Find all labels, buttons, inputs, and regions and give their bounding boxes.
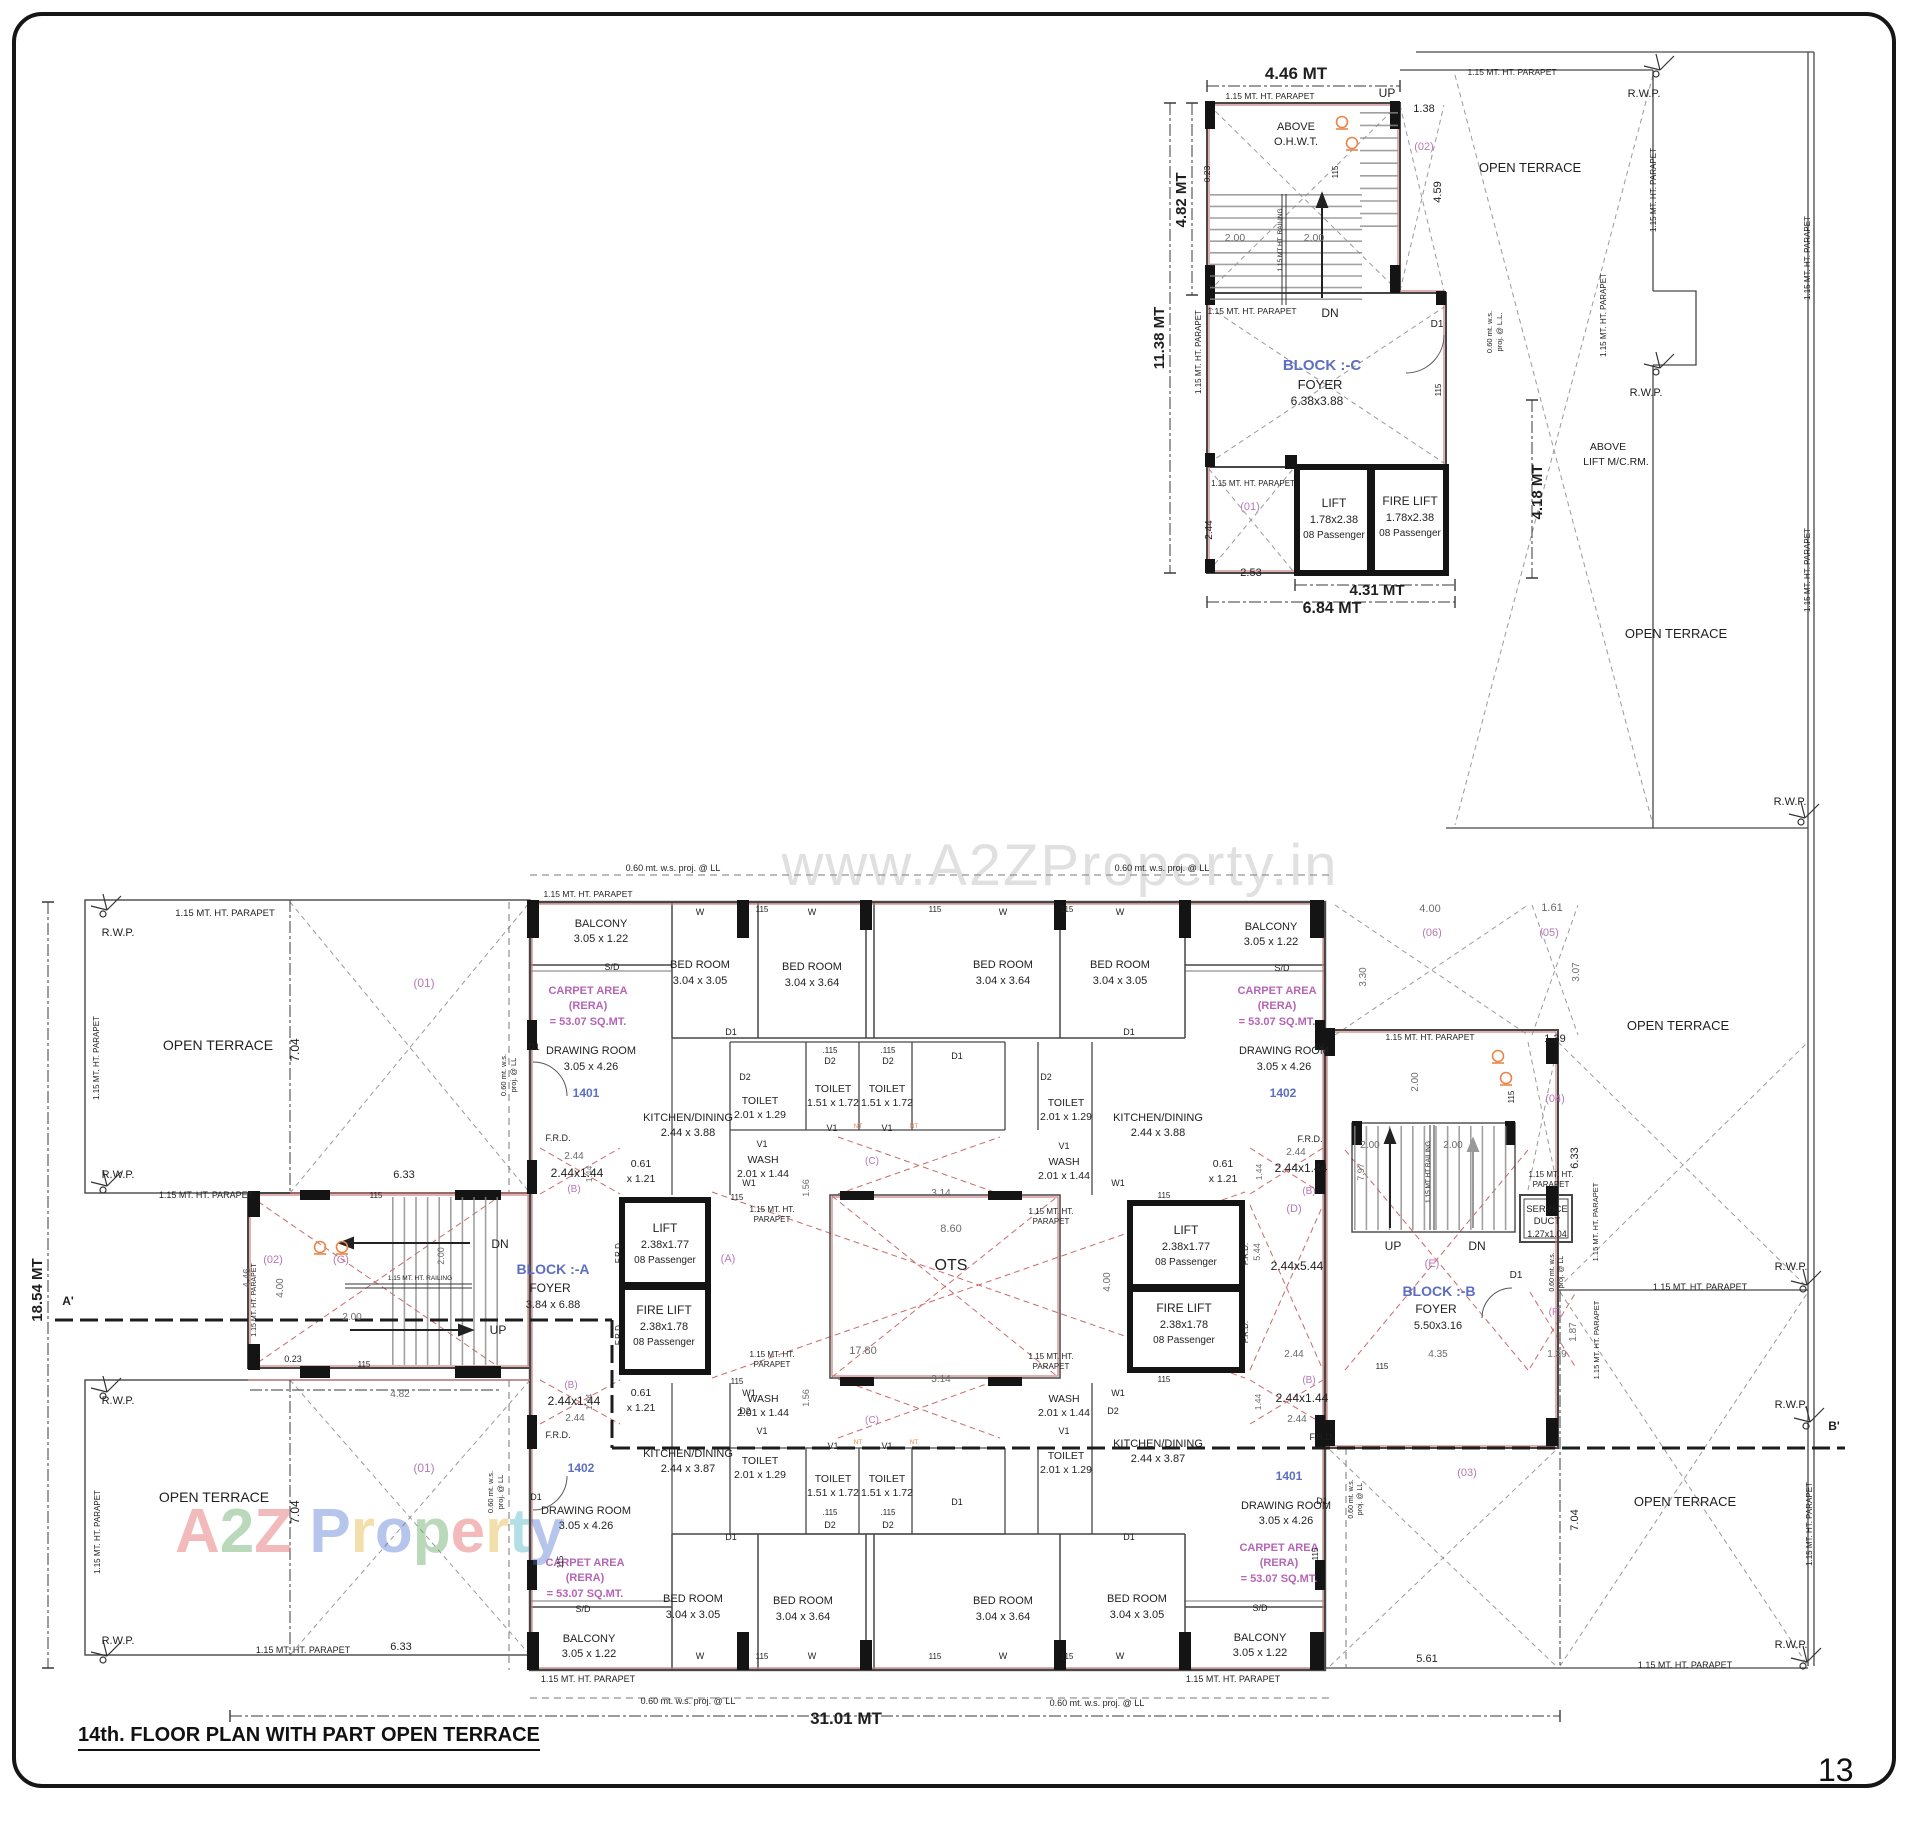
- window-w: W: [999, 1651, 1008, 1661]
- unit-number: 1402: [568, 1461, 595, 1475]
- vent-v1: V1: [881, 1441, 892, 1451]
- toilet-name: TOILET: [742, 1455, 779, 1467]
- bedroom-size: 3.04 x 3.64: [785, 977, 839, 989]
- dim-115: .115: [823, 1508, 839, 1517]
- dim: 2.00: [342, 1312, 362, 1323]
- zone-a: (A): [721, 1253, 736, 1265]
- dim: 4.00: [1419, 903, 1440, 915]
- toilet-name: TOILET: [815, 1083, 852, 1095]
- dim-115: 115: [731, 1193, 744, 1202]
- firelift-b-name: FIRE LIFT: [1156, 1301, 1212, 1315]
- proj-label: proj. @ LL: [509, 1058, 518, 1093]
- bedroom-size: 3.04 x 3.05: [1093, 975, 1147, 987]
- parapet-label: 1.15 MT. HT. PARAPET: [159, 1190, 254, 1200]
- door-d1: D1: [951, 1051, 963, 1061]
- block-c-title: BLOCK :-C: [1283, 357, 1361, 374]
- door-d2: D2: [1040, 1072, 1052, 1082]
- frd-label: F.R.D.: [1241, 1243, 1250, 1265]
- unit-number: 1402: [1270, 1086, 1297, 1100]
- dim: 4.00: [275, 1278, 286, 1298]
- bedroom-name: BED ROOM: [973, 959, 1033, 971]
- service-duct: DUCT: [1534, 1216, 1561, 1227]
- zone-01: (01): [413, 1461, 434, 1475]
- balcony-size: 3.05 x 1.22: [1233, 1647, 1287, 1659]
- dim-115: 115: [1158, 1375, 1171, 1384]
- drawing-title: 14th. FLOOR PLAN WITH PART OPEN TERRACE: [78, 1724, 540, 1751]
- door-d1: D1: [1123, 1532, 1135, 1542]
- parapet-2l: 1.15 MT. HT.: [1029, 1352, 1074, 1361]
- drawing-room-size: 3.05 x 4.26: [559, 1520, 613, 1532]
- dim: 2.00: [436, 1247, 446, 1265]
- dim: 2.44: [564, 1151, 584, 1162]
- wash-size: 2.01 x 1.44: [1038, 1407, 1090, 1419]
- toilet-name: TOILET: [869, 1083, 906, 1095]
- dim: 1.44: [584, 1393, 594, 1410]
- stair-up-label: UP: [1385, 1239, 1402, 1253]
- lift-c-name: LIFT: [1322, 496, 1347, 510]
- firelift-c-cap: 08 Passenger: [1379, 528, 1441, 539]
- stairs: [340, 112, 1513, 1335]
- bedroom-name: BED ROOM: [773, 1595, 833, 1607]
- dim-4-82-mt: 4.82 MT: [1173, 172, 1190, 227]
- parapet-label: 1.15 MT. HT. PARAPET: [251, 1263, 258, 1337]
- dim: 4.82: [390, 1389, 410, 1400]
- dim: 1.39: [1544, 1033, 1565, 1045]
- sd-label: S/D: [604, 962, 620, 972]
- proj-label: 0.60 mt. w.s.: [486, 1471, 495, 1513]
- window-w: W: [808, 907, 817, 917]
- proj-label: 0.60 mt. w.s. proj. @ LL: [626, 863, 721, 873]
- watermark-center: www.A2ZProperty.in: [780, 833, 1338, 898]
- rwp-label: R.W.P.: [1628, 88, 1661, 100]
- proj-label: proj. @ LL: [1357, 1483, 1364, 1516]
- drawing-room-size: 3.05 x 4.26: [1257, 1061, 1311, 1073]
- dim: x 1.21: [627, 1402, 656, 1414]
- dim: x 1.21: [627, 1173, 656, 1185]
- dim: 2.00: [1360, 1140, 1380, 1151]
- parapet-label: 1.15 MT. HT. PARAPET: [1194, 310, 1203, 394]
- zone-d: (D): [1286, 1203, 1301, 1215]
- railing-label: 1.15 MT HT RAILING: [1425, 1141, 1432, 1203]
- firelift-a-cap: 08 Passenger: [633, 1337, 695, 1348]
- balcony-name: BALCONY: [563, 1633, 616, 1645]
- parapet-label: 1.15 MT. HT. PARAPET: [1653, 1282, 1748, 1292]
- carpet-area: = 53.07 SQ.MT.: [550, 1016, 627, 1028]
- block-a-title: BLOCK :-A: [516, 1261, 589, 1277]
- dim: x 1.21: [1209, 1173, 1238, 1185]
- dim-6-84-mt: 6.84 MT: [1303, 600, 1362, 617]
- stair-arrow-secondary: [1468, 1139, 1478, 1228]
- door-d1: D1: [725, 1027, 737, 1037]
- parapet-label: 1.15 MT. HT. PARAPET: [1207, 306, 1296, 316]
- wash-name: WASH: [747, 1393, 778, 1405]
- bedroom-name: BED ROOM: [670, 959, 730, 971]
- parapet-label: 1.15 MT. HT. PARAPET: [1592, 1300, 1601, 1379]
- dim: 2.44x1.44: [1275, 1161, 1328, 1175]
- dim-115: 115: [929, 905, 942, 914]
- above-ohwt: ABOVE: [1277, 121, 1315, 133]
- toilet-name: TOILET: [815, 1473, 852, 1485]
- frd-label: F.R.D.: [614, 1241, 623, 1263]
- bedroom-size: 3.04 x 3.64: [976, 975, 1030, 987]
- dim-115: .115: [881, 1046, 897, 1055]
- open-terrace-label: OPEN TERRACE: [159, 1489, 269, 1505]
- wash-size: 2.01 x 1.44: [1038, 1170, 1090, 1182]
- stair-dn-label: DN: [1321, 306, 1338, 320]
- zone-c: (C): [865, 1156, 879, 1167]
- above-ohwt: O.H.W.T.: [1274, 136, 1318, 148]
- bedroom-name: BED ROOM: [663, 1593, 723, 1605]
- dim: 1.56: [801, 1389, 811, 1407]
- dim-115: 115: [1434, 383, 1443, 396]
- parapet-2l: 1.15 MT. HT.: [750, 1350, 795, 1359]
- carpet-area: CARPET AREA: [1239, 1542, 1318, 1554]
- dim: 2.44x1.44: [1276, 1391, 1329, 1405]
- dim: 0.61: [631, 1158, 652, 1170]
- dim-4-59: 4.59: [1432, 181, 1444, 202]
- nt-label: NT: [854, 1439, 863, 1446]
- zone-01: (01): [413, 976, 434, 990]
- carpet-area: CARPET AREA: [1237, 985, 1316, 997]
- toilet-size: 1.51 x 1.72: [807, 1487, 859, 1499]
- carpet-area: (RERA): [1258, 1000, 1297, 1012]
- parapet-label: 1.15 MT. HT. PARAPET: [543, 889, 632, 899]
- lift-b-name: LIFT: [1174, 1223, 1199, 1237]
- block-b-foyer-dim: 5.50x3.16: [1414, 1320, 1462, 1332]
- win-w1: W1: [742, 1178, 756, 1188]
- open-terrace-label: OPEN TERRACE: [1625, 626, 1728, 641]
- rwp-label: R.W.P.: [102, 1635, 135, 1647]
- carpet-area: (RERA): [569, 1000, 608, 1012]
- nt-label: NT: [910, 1123, 919, 1130]
- vent-v1: V1: [756, 1426, 767, 1436]
- dim-115: 115: [756, 1652, 769, 1661]
- dim-4-46-mt: 4.46 MT: [1265, 64, 1328, 83]
- door-d1: D1: [1123, 1027, 1135, 1037]
- toilet-size: 2.01 x 1.29: [1040, 1111, 1092, 1123]
- dim-11-38-mt: 11.38 MT: [1151, 307, 1168, 370]
- parapet-label: 1.15 MT. HT. PARAPET: [1467, 67, 1556, 77]
- section-a-label: A': [62, 1294, 74, 1308]
- sd-label: S/D: [1252, 1603, 1268, 1613]
- door-d1: D1: [1314, 1042, 1326, 1052]
- parapet-2l: 1.15 MT. HT.: [1529, 1170, 1574, 1179]
- parapet-label: 1.15 MT. HT. PARAPET: [1638, 1660, 1733, 1670]
- dim-115: 115: [731, 1377, 744, 1386]
- dim-1-38: 1.38: [1413, 103, 1434, 115]
- kitchen-dining: KITCHEN/DINING: [1113, 1438, 1203, 1450]
- dim-115: 115: [1507, 1090, 1516, 1103]
- window-w: W: [999, 907, 1008, 917]
- toilet-name: TOILET: [1048, 1450, 1085, 1462]
- dim-115: 115: [1158, 1191, 1171, 1200]
- stair-up-label: UP: [1379, 86, 1396, 100]
- toilet-size: 1.51 x 1.72: [861, 1487, 913, 1499]
- balcony-size: 3.05 x 1.22: [574, 933, 628, 945]
- zone-e: (E): [1425, 1258, 1440, 1270]
- firelift-c-size: 1.78x2.38: [1386, 512, 1434, 524]
- dim: 7.04: [1569, 1509, 1581, 1530]
- zone-03: (03): [1457, 1467, 1477, 1479]
- vent-v1: V1: [756, 1139, 767, 1149]
- bedroom-size: 3.04 x 3.05: [666, 1609, 720, 1621]
- rwp-label: R.W.P.: [1630, 387, 1663, 399]
- zone-b: (B): [564, 1380, 577, 1391]
- door-d1: D1: [1316, 1496, 1328, 1506]
- stair-up-label: UP: [490, 1323, 507, 1337]
- door-d1: D1: [951, 1497, 963, 1507]
- lift-a-cap: 08 Passenger: [634, 1255, 696, 1266]
- zone-05: (05): [1539, 927, 1559, 939]
- frd-label: F.R.D.: [545, 1430, 570, 1440]
- dim-115: 115: [1331, 165, 1340, 178]
- watermark-left: A2Z Property: [175, 1497, 565, 1566]
- lift-b-size: 2.38x1.77: [1162, 1241, 1210, 1253]
- dim-0-23: 0.23: [1202, 165, 1212, 182]
- drawing-room-size: 3.05 x 4.26: [564, 1061, 618, 1073]
- dim: 2.44: [1284, 1349, 1304, 1360]
- above-lift-mc: LIFT M/C.RM.: [1583, 456, 1649, 468]
- window-w: W: [696, 1651, 705, 1661]
- vent-v1: V1: [826, 1123, 837, 1133]
- rwp-label: R.W.P.: [1774, 796, 1807, 808]
- toilet-size: 2.01 x 1.29: [734, 1469, 786, 1481]
- dim: 2.44: [1286, 1147, 1306, 1158]
- door-d1: D1: [528, 1042, 540, 1052]
- floor-plan-drawing: www.A2ZProperty.inA2Z Property 4.46 MT1.…: [0, 0, 1920, 1827]
- dim: 3.07: [1571, 962, 1582, 982]
- carpet-area: (RERA): [1260, 1557, 1299, 1569]
- dim: 1.44: [584, 1165, 594, 1182]
- dim-115: 115: [1376, 1362, 1389, 1371]
- dim: 0.61: [1213, 1158, 1234, 1170]
- door-d2: D2: [882, 1056, 894, 1066]
- rwp-label: R.W.P.: [102, 927, 135, 939]
- section-b-label: B': [1828, 1419, 1840, 1433]
- proj-label: proj. @ L.L.: [1495, 313, 1504, 352]
- parapet-label: 1.15 MT. HT. PARAPET: [1805, 1482, 1814, 1566]
- door-d2: D2: [824, 1520, 836, 1530]
- door-d2: D2: [1107, 1406, 1119, 1416]
- wash-name: WASH: [747, 1154, 778, 1166]
- bedroom-size: 3.04 x 3.05: [1110, 1609, 1164, 1621]
- dim-115: .115: [823, 1046, 839, 1055]
- dim: 0.61: [631, 1387, 652, 1399]
- service-duct-size: 1.27x1.04: [1527, 1229, 1567, 1239]
- kitchen-dining-size: 2.44 x 3.88: [661, 1127, 715, 1139]
- dim: 2.44: [1287, 1414, 1307, 1425]
- balcony-name: BALCONY: [1245, 921, 1298, 933]
- parapet-2l: PARAPET: [1033, 1217, 1070, 1226]
- block-b-foyer: FOYER: [1415, 1302, 1457, 1316]
- block-b-title: BLOCK :-B: [1402, 1283, 1475, 1299]
- dim-4-31-mt: 4.31 MT: [1349, 582, 1404, 599]
- proj-label: 0.60 mt. w.s. proj. @ LL: [1050, 1698, 1145, 1708]
- kitchen-dining: KITCHEN/DINING: [1113, 1112, 1203, 1124]
- dim: 5.61: [1416, 1653, 1437, 1665]
- dim: 1.56: [801, 1179, 811, 1197]
- parapet-label: 1.15 MT. HT. PARAPET: [1599, 273, 1608, 357]
- door-d2: D2: [739, 1072, 751, 1082]
- dim-4-18-mt: 4.18 MT: [1529, 464, 1546, 519]
- nt-label: NT: [854, 1123, 863, 1130]
- kitchen-dining: KITCHEN/DINING: [643, 1448, 733, 1460]
- block-c-foyer: FOYER: [1298, 377, 1343, 392]
- open-terrace-label: OPEN TERRACE: [1479, 160, 1582, 175]
- zone-b: (B): [1302, 1186, 1315, 1197]
- dim-115: 115: [1061, 1652, 1074, 1661]
- rwp-label: R.W.P.: [102, 1169, 135, 1181]
- lift-a-name: LIFT: [653, 1221, 678, 1235]
- dim: 3.14: [931, 1188, 951, 1199]
- kitchen-dining: KITCHEN/DINING: [643, 1112, 733, 1124]
- frd-label: F.R.D.: [545, 1133, 570, 1143]
- dim-115: 115: [1061, 905, 1074, 914]
- kitchen-dining-size: 2.44 x 3.88: [1131, 1127, 1185, 1139]
- toilet-name: TOILET: [869, 1473, 906, 1485]
- zone-01c: (01): [1240, 501, 1260, 513]
- unit-number: 1401: [1276, 1469, 1303, 1483]
- proj-label: 0.60 mt. w.s.: [1485, 311, 1494, 353]
- proj-label: 0.60 mt. w.s.: [1549, 1252, 1556, 1291]
- dim-2-00: 2.00: [1225, 232, 1246, 244]
- service-duct: SERVICE: [1526, 1204, 1568, 1215]
- lift-a-size: 2.38x1.77: [641, 1239, 689, 1251]
- lift-c-cap: 08 Passenger: [1303, 530, 1365, 541]
- dim: 2.00: [1410, 1072, 1421, 1092]
- bedroom-size: 3.04 x 3.05: [673, 975, 727, 987]
- floor-plan-sheet: www.A2ZProperty.inA2Z Property 4.46 MT1.…: [0, 0, 1920, 1827]
- proj-label: proj. @ LL: [1558, 1256, 1565, 1289]
- carpet-area: = 53.07 SQ.MT.: [1239, 1016, 1316, 1028]
- parapet-label: 1.15 MT. HT. PARAPET: [92, 1016, 101, 1100]
- proj-label: 0.60 mt. w.s.: [499, 1054, 508, 1096]
- dim-31-01-mt: 31.01 MT: [810, 1709, 882, 1728]
- toilet-size: 1.51 x 1.72: [861, 1097, 913, 1109]
- rwp-label: R.W.P.: [1775, 1639, 1808, 1651]
- dim-2-00: 2.00: [1304, 232, 1325, 244]
- bedroom-name: BED ROOM: [782, 961, 842, 973]
- parapet-2l: PARAPET: [1033, 1362, 1070, 1371]
- wash-name: WASH: [1048, 1393, 1079, 1405]
- zone-02c: (02): [1414, 141, 1434, 153]
- zone-02: (02): [263, 1254, 283, 1266]
- zone-f: (F): [1549, 1307, 1562, 1318]
- dim-6-33: 6.33: [393, 1169, 414, 1181]
- dim-2-44: 2.44: [1204, 520, 1215, 540]
- parapet-label: 1.15 MT. HT. PARAPET: [1803, 528, 1812, 612]
- window-w: W: [1116, 907, 1125, 917]
- parapet-2l: PARAPET: [1533, 1180, 1570, 1189]
- window-w: W: [808, 1651, 817, 1661]
- dim: 2.00: [1443, 1140, 1463, 1151]
- firelift-b-cap: 08 Passenger: [1153, 1335, 1215, 1346]
- zone-b: (B): [1302, 1375, 1315, 1386]
- firelift-a-size: 2.38x1.78: [640, 1321, 688, 1333]
- rwp-label: R.W.P.: [1775, 1261, 1808, 1273]
- proj-label: 0.60 mt. w.s. proj. @ LL: [641, 1696, 736, 1706]
- door-d1: D1: [1510, 1270, 1523, 1281]
- carpet-area: = 53.07 SQ.MT.: [1241, 1573, 1318, 1585]
- open-terrace-label: OPEN TERRACE: [1627, 1018, 1730, 1033]
- kitchen-dining-size: 2.44 x 3.87: [1131, 1453, 1185, 1465]
- rwp-label: R.W.P.: [1775, 1399, 1808, 1411]
- nt-label: NT: [910, 1439, 919, 1446]
- above-lift-mc: ABOVE: [1590, 441, 1626, 453]
- zone-b: (B): [567, 1184, 580, 1195]
- zone-04: (04): [1545, 1093, 1565, 1105]
- parapet-label: 1.15 MT. HT. PARAPET: [1649, 148, 1658, 232]
- door-d1: D1: [530, 1492, 542, 1502]
- toilet-size: 1.51 x 1.72: [807, 1097, 859, 1109]
- drawing-room: DRAWING ROOM: [546, 1045, 636, 1057]
- dim: 2.44x1.44: [551, 1166, 604, 1180]
- win-w1: W1: [1111, 1178, 1125, 1188]
- parapet-label: 1.15 MT. HT. PARAPET: [1803, 216, 1812, 300]
- vent-v1: V1: [1058, 1426, 1069, 1436]
- dim: 17.80: [849, 1345, 877, 1357]
- carpet-area: CARPET AREA: [548, 985, 627, 997]
- vent-v1: V1: [827, 1441, 838, 1451]
- dim-115: 115: [929, 1652, 942, 1661]
- parapet-label: 1.15 MT. HT. PARAPET: [1186, 1674, 1281, 1684]
- window-w: W: [696, 907, 705, 917]
- dim-115: 115: [358, 1360, 371, 1369]
- dim: 1.39: [1547, 1349, 1567, 1360]
- open-terrace-label: OPEN TERRACE: [163, 1037, 273, 1053]
- win-w1: W1: [1111, 1388, 1125, 1398]
- open-terrace-label: OPEN TERRACE: [1634, 1494, 1737, 1509]
- railing-label: 1.15 MT HT. RAILING: [1277, 208, 1284, 271]
- toilet-size: 2.01 x 1.29: [734, 1109, 786, 1121]
- drawing-room: DRAWING ROOM: [541, 1505, 631, 1517]
- dim-115: .115: [881, 1508, 897, 1517]
- parapet-2l: 1.15 MT. HT.: [1029, 1207, 1074, 1216]
- dim: 4.00: [1102, 1272, 1113, 1292]
- zone-c: (C): [865, 1415, 879, 1426]
- toilet-name: TOILET: [1048, 1097, 1085, 1109]
- ots-label: OTS: [935, 1257, 968, 1274]
- bedroom-size: 3.04 x 3.64: [776, 1611, 830, 1623]
- dim: 7.04: [288, 1500, 302, 1524]
- firelift-b-size: 2.38x1.78: [1160, 1319, 1208, 1331]
- dim-115: 115: [1311, 1547, 1320, 1560]
- dim-115: 115: [370, 1191, 383, 1200]
- vent-v1: V1: [1058, 1141, 1069, 1151]
- parapet-2l: PARAPET: [754, 1360, 791, 1369]
- vent-v1: V1: [881, 1123, 892, 1133]
- unit-number: 1401: [573, 1086, 600, 1100]
- dim: 8.60: [940, 1223, 961, 1235]
- balcony-size: 3.05 x 1.22: [1244, 936, 1298, 948]
- toilet-name: TOILET: [742, 1095, 779, 1107]
- dim: 3.14: [931, 1374, 951, 1385]
- wash-size: 2.01 x 1.44: [737, 1407, 789, 1419]
- drawing-room-size: 3.05 x 4.26: [1259, 1515, 1313, 1527]
- stair-dn-label: DN: [491, 1237, 508, 1251]
- stair-dn-label: DN: [1468, 1239, 1485, 1253]
- dim: 2.44x5.44: [1271, 1259, 1324, 1273]
- bedroom-size: 3.04 x 3.64: [976, 1611, 1030, 1623]
- parapet-label: 1.15 MT. HT. PARAPET: [93, 1490, 102, 1574]
- door-d1: D1: [1431, 319, 1444, 330]
- dim: 7.97: [1356, 1163, 1366, 1181]
- dim: 1.61: [1541, 902, 1562, 914]
- firelift-a-name: FIRE LIFT: [636, 1303, 692, 1317]
- dim-7-04: 7.04: [288, 1038, 302, 1062]
- window-w: W: [1116, 1651, 1125, 1661]
- zone-g: (G): [333, 1254, 349, 1266]
